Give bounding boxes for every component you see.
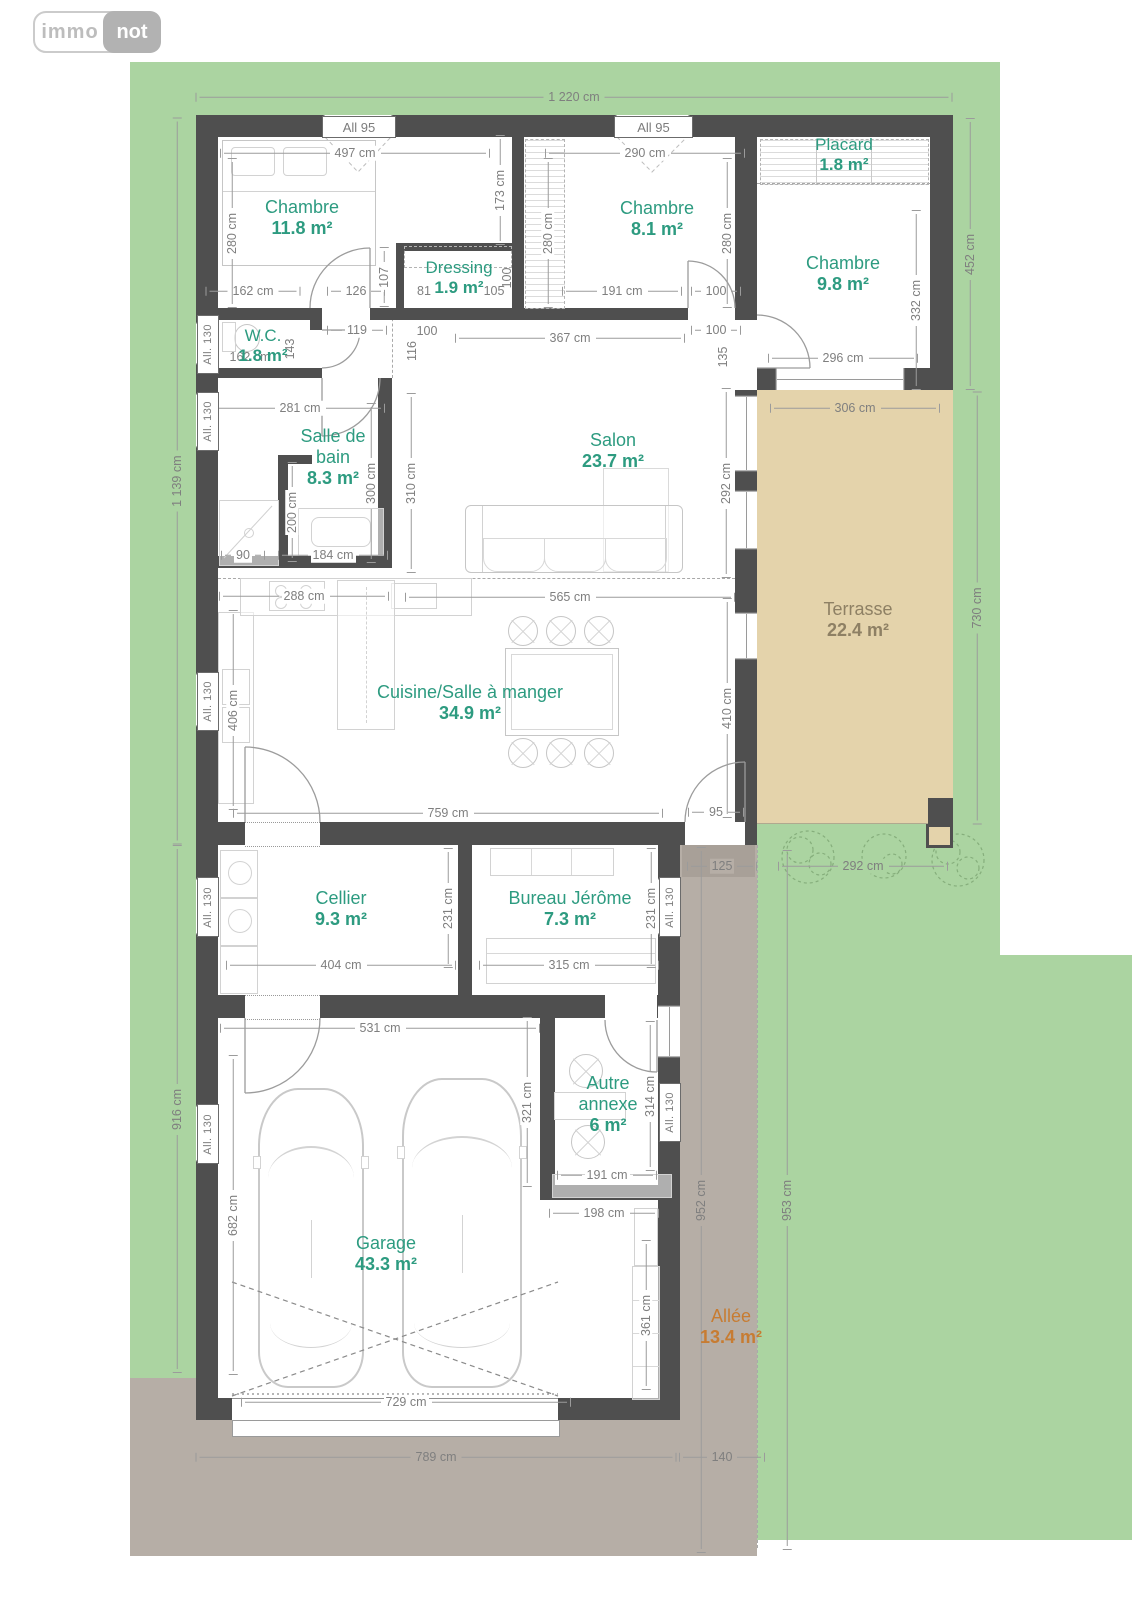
dim: 280 cm xyxy=(542,158,555,308)
dim: 280 cm xyxy=(721,158,734,308)
wall xyxy=(393,115,615,137)
wall xyxy=(735,550,757,612)
wall xyxy=(196,1162,218,1420)
wall xyxy=(540,1018,555,1188)
dryer xyxy=(220,898,258,946)
dim: 107 xyxy=(378,247,391,307)
room-area: 8.1 m² xyxy=(620,219,694,240)
room-label-cellier: Cellier 9.3 m² xyxy=(315,888,367,930)
room-label-annexe: Autre annexe 6 m² xyxy=(566,1073,650,1137)
wall xyxy=(320,995,605,1018)
dim-left-lower: 916 cm xyxy=(171,845,184,1373)
dim-right-upper: 452 cm xyxy=(964,118,977,390)
logo-text-immo: immo xyxy=(35,21,105,44)
room-label-terrasse: Terrasse 22.4 m² xyxy=(823,599,892,641)
bay-window xyxy=(775,368,905,390)
dim: 280 cm xyxy=(226,158,239,308)
car xyxy=(258,1088,364,1388)
terrace-pillar xyxy=(926,824,953,848)
room-label-allee: Allée 13.4 m² xyxy=(700,1306,762,1348)
dim: 367 cm xyxy=(455,331,685,346)
dim: 759 cm xyxy=(233,806,663,821)
room-label-bureau: Bureau Jérôme 7.3 m² xyxy=(508,888,631,930)
room-area: 34.9 m² xyxy=(377,703,563,724)
window-label-all130: All. 130 xyxy=(197,392,219,451)
room-name: Garage xyxy=(356,1233,416,1253)
daybed-line xyxy=(487,953,655,954)
room-name: Salon xyxy=(590,430,636,450)
dim: 100 xyxy=(501,266,514,291)
dining-chair xyxy=(546,738,576,768)
dim: 288 cm xyxy=(219,589,389,604)
room-label-chambre3: Chambre 9.8 m² xyxy=(806,253,880,295)
sink-basin xyxy=(311,517,371,547)
dim: 292 cm xyxy=(778,859,948,874)
dim: 296 cm xyxy=(768,351,918,366)
wall xyxy=(196,822,245,845)
dim: 410 cm xyxy=(721,598,734,818)
window xyxy=(735,490,757,550)
desk-line xyxy=(571,849,572,875)
dim: 332 cm xyxy=(910,210,923,390)
dim: 100 xyxy=(415,324,440,339)
blanket-line xyxy=(223,191,375,192)
dim: 531 cm xyxy=(220,1021,540,1036)
room-area: 1.8 m² xyxy=(815,155,873,175)
dim: 100 xyxy=(691,284,741,299)
dim: 497 cm xyxy=(220,146,490,161)
washer-drum xyxy=(228,861,252,885)
shower-drain xyxy=(244,528,254,538)
dining-chair xyxy=(508,738,538,768)
room-area: 8.3 m² xyxy=(283,469,383,490)
room-label-cuisine: Cuisine/Salle à manger 34.9 m² xyxy=(377,682,563,724)
dining-chair xyxy=(546,616,576,646)
wall xyxy=(196,935,218,1105)
dim: 321 cm xyxy=(521,1017,534,1187)
wall xyxy=(558,1398,680,1420)
dim-bottom-right: 140 xyxy=(679,1450,765,1465)
annexe-doorway xyxy=(605,995,657,1018)
wall xyxy=(458,845,472,995)
dim: 406 cm xyxy=(227,610,240,810)
dim: 191 cm xyxy=(557,1168,657,1183)
room-name: Terrasse xyxy=(823,599,892,619)
room-label-placard: Placard 1.8 m² xyxy=(815,135,873,175)
window-label-all130: All. 130 xyxy=(197,877,219,937)
dim-right-terrace: 730 cm xyxy=(971,392,984,825)
room-area: 1.8 m² xyxy=(238,346,287,366)
island-line xyxy=(366,587,367,723)
room-name: Chambre xyxy=(265,197,339,217)
dim: 290 cm xyxy=(545,146,745,161)
window xyxy=(735,395,757,472)
window-label-all130: All. 130 xyxy=(197,672,219,731)
dim: 198 cm xyxy=(549,1206,659,1221)
driveway-lawn-boundary xyxy=(757,845,758,1548)
window-label-all130: All. 130 xyxy=(659,877,681,937)
room-name: Chambre xyxy=(620,198,694,218)
dim: 95 xyxy=(688,805,744,820)
rear-window xyxy=(414,1323,510,1348)
room-name: Placard xyxy=(815,135,873,154)
cellier-garage-passage xyxy=(245,995,320,1020)
terrace-post xyxy=(928,798,953,824)
lawn-bottom xyxy=(757,1378,1000,1540)
room-area: 9.8 m² xyxy=(806,274,880,295)
dim: 90 xyxy=(221,548,265,563)
room-area: 9.3 m² xyxy=(315,909,367,930)
wall xyxy=(735,472,757,490)
dim-lawn-length: 953 cm xyxy=(781,850,794,1550)
room-name: Chambre xyxy=(806,253,880,273)
wall xyxy=(512,137,524,308)
room-area: 11.8 m² xyxy=(265,218,339,239)
wall xyxy=(690,115,953,137)
wall xyxy=(320,822,685,845)
room-label-chambre1: Chambre 11.8 m² xyxy=(265,197,339,239)
dim: 119 xyxy=(327,323,387,338)
dim: 125 xyxy=(687,859,757,874)
dim: 682 cm xyxy=(227,1055,240,1375)
room-name: W.C. xyxy=(245,326,282,345)
room-name: Dressing xyxy=(425,258,492,277)
dim: 281 cm xyxy=(215,401,385,416)
room-area: 6 m² xyxy=(566,1116,650,1137)
dim: 306 cm xyxy=(770,401,940,416)
window xyxy=(735,612,757,660)
dim: 729 cm xyxy=(241,1395,571,1410)
dim-total-width: 1 220 cm xyxy=(196,90,953,105)
room-label-wc: W.C. 1.8 m² xyxy=(238,326,287,366)
dim: 292 cm xyxy=(720,388,733,578)
room-name: Cuisine/Salle à manger xyxy=(377,682,563,702)
window-label-all130: All. 130 xyxy=(197,1104,219,1164)
logo-text-not: not xyxy=(103,11,161,53)
room-label-salon: Salon 23.7 m² xyxy=(582,430,644,472)
room-area: 1.9 m² xyxy=(425,278,492,298)
dim: 100 xyxy=(691,323,741,338)
sofa-armrest xyxy=(466,506,483,572)
immonot-logo: immo not xyxy=(33,11,161,53)
wall xyxy=(745,822,757,845)
room-name: Cellier xyxy=(315,888,366,908)
sofa xyxy=(465,505,683,573)
dim-driveway-length: 952 cm xyxy=(695,847,708,1553)
toilet-tank xyxy=(222,322,236,352)
window-label-all130: All. 130 xyxy=(659,1083,681,1142)
room-area: 23.7 m² xyxy=(582,451,644,472)
sofa-cushion xyxy=(605,538,667,572)
dining-chair xyxy=(584,616,614,646)
room-name: Allée xyxy=(711,1306,751,1326)
room-area: 13.4 m² xyxy=(700,1327,762,1348)
wall xyxy=(310,308,322,330)
sofa-cushion xyxy=(483,538,545,572)
dim: 404 cm xyxy=(226,958,456,973)
window-label-all130: All. 130 xyxy=(197,315,219,374)
wall xyxy=(196,995,245,1018)
desk-line xyxy=(531,849,532,875)
dim: 361 cm xyxy=(640,1240,653,1390)
sofa-cushion xyxy=(544,538,606,572)
dim: 162 cm xyxy=(206,284,301,299)
room-name: Autre annexe xyxy=(578,1073,637,1114)
dim-left-upper: 1 139 cm xyxy=(171,118,184,845)
wall xyxy=(735,660,757,822)
wall xyxy=(196,1398,232,1420)
desk xyxy=(490,848,614,876)
mirror xyxy=(361,1156,369,1169)
car-centerline xyxy=(311,1220,312,1278)
room-label-dressing: Dressing 1.9 m² xyxy=(425,258,492,298)
wall xyxy=(930,115,953,390)
dining-chair xyxy=(584,738,614,768)
floor-plan-page: immo not xyxy=(0,0,1132,1600)
dim-bottom-width: 789 cm xyxy=(196,1450,677,1465)
wall xyxy=(658,845,680,878)
lawn-right xyxy=(1000,955,1132,1540)
room-area: 22.4 m² xyxy=(823,620,892,641)
room-label-garage: Garage 43.3 m² xyxy=(355,1233,417,1275)
window xyxy=(658,1005,680,1058)
garage-door-panel xyxy=(232,1420,560,1437)
room-label-salle-de-bain: Salle de bain 8.3 m² xyxy=(283,426,383,490)
windshield xyxy=(412,1136,512,1168)
wall xyxy=(370,308,512,320)
room-label-chambre2: Chambre 8.1 m² xyxy=(620,198,694,240)
wall xyxy=(396,243,404,310)
rear-window xyxy=(270,1323,352,1348)
room-name: Bureau Jérôme xyxy=(508,888,631,908)
washer xyxy=(220,850,258,898)
window-label-all95: All 95 xyxy=(322,116,396,138)
windshield xyxy=(268,1146,354,1178)
wall xyxy=(757,368,775,390)
dim: 191 cm xyxy=(562,284,682,299)
dim: 135 xyxy=(717,345,730,370)
dim: 116 xyxy=(406,339,419,363)
cellier-passage xyxy=(245,822,320,847)
dim: 231 cm xyxy=(442,848,455,968)
sofa-armrest xyxy=(665,506,682,572)
dining-chair xyxy=(508,616,538,646)
car-centerline xyxy=(462,1215,463,1273)
dim: 315 cm xyxy=(479,958,659,973)
mirror xyxy=(253,1156,261,1169)
dim: 310 cm xyxy=(405,393,418,573)
mirror xyxy=(397,1146,405,1159)
wall xyxy=(512,308,688,320)
dryer-drum xyxy=(228,909,252,933)
room-name: Salle de bain xyxy=(300,426,365,467)
room-area: 43.3 m² xyxy=(355,1254,417,1275)
car xyxy=(402,1078,522,1388)
dim: 231 cm xyxy=(645,848,658,968)
room-area: 7.3 m² xyxy=(508,909,631,930)
wall xyxy=(196,727,218,878)
dim: 565 cm xyxy=(405,590,735,605)
wall xyxy=(735,308,757,320)
window-label-all95: All 95 xyxy=(614,116,693,138)
dim: 173 cm xyxy=(494,135,507,245)
